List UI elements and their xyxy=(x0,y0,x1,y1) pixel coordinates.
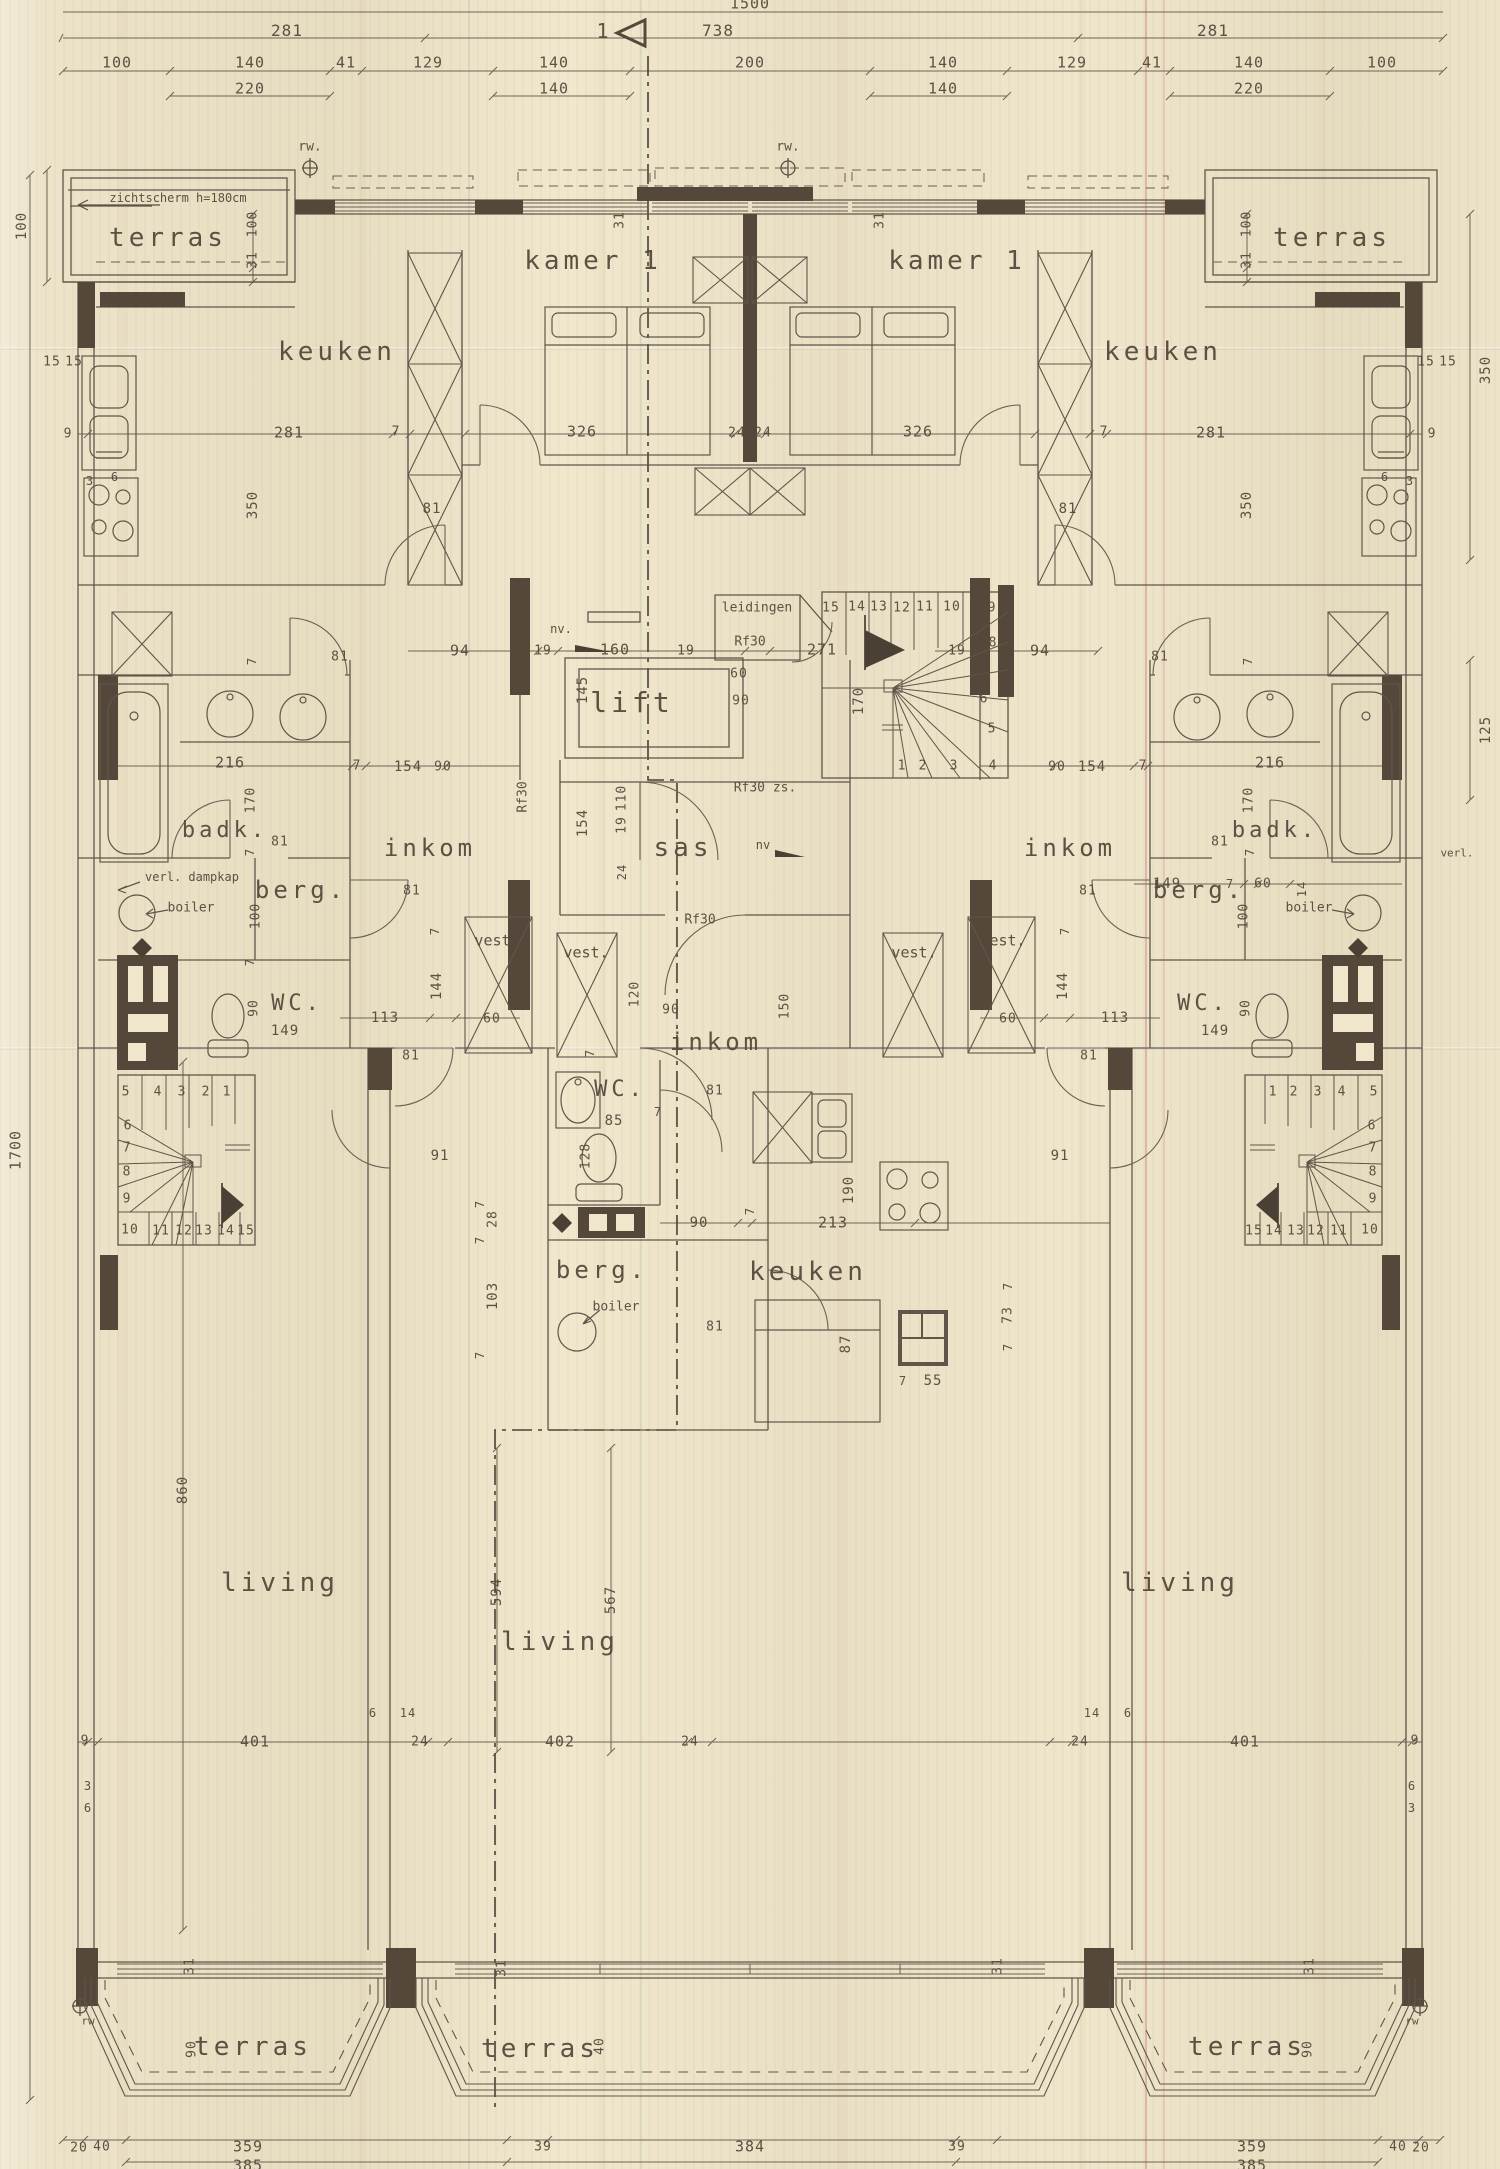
room-terras-bottom-right: terras xyxy=(1188,2034,1306,2060)
dimension-label: 87 xyxy=(839,1335,853,1354)
dimension-label: 7 xyxy=(1244,848,1256,856)
dimension-label: 154 xyxy=(1078,760,1106,774)
dimension-label: 31 xyxy=(992,1957,1005,1975)
dimension-label: 7 xyxy=(1059,927,1071,935)
dimension-label: 15 xyxy=(1439,356,1457,369)
dimension-label: 24 xyxy=(728,427,746,440)
dimension-label: 1 xyxy=(223,1086,232,1099)
dimension-label: 1 xyxy=(898,760,907,773)
dimension-label: 11 xyxy=(916,601,934,614)
dimension-label: 40 xyxy=(1389,2141,1407,2154)
dimension-label: 14 xyxy=(217,1225,235,1238)
dimension-label: 40 xyxy=(93,2141,111,2154)
dimension-label: 94 xyxy=(450,644,470,659)
note-rw-bottom-left: rw xyxy=(81,2016,94,2027)
dimension-label: 90 xyxy=(1240,999,1253,1017)
dimension-label: 24 xyxy=(616,864,628,880)
dimension-label: 149 xyxy=(1201,1024,1229,1038)
dimension-label: 31 xyxy=(184,1957,197,1975)
dimension-label: 9 xyxy=(988,602,997,615)
dimension-label: 6 xyxy=(1368,1120,1377,1133)
floor-plan-sheet: 1500281173828110014041129140200140129411… xyxy=(0,0,1500,2169)
dimension-label: 90 xyxy=(662,1004,680,1017)
dimension-label: 103 xyxy=(486,1282,500,1310)
dimension-label: 2 xyxy=(919,760,928,773)
dimension-label: 113 xyxy=(1101,1011,1129,1025)
dimension-label: 7 xyxy=(392,426,401,439)
dimension-label: 170 xyxy=(245,787,258,813)
room-berg-center: berg. xyxy=(556,1258,648,1282)
dimension-label: 20 xyxy=(70,2142,88,2155)
dimension-label: 170 xyxy=(1243,787,1256,813)
dimension-label: 24 xyxy=(1071,1736,1089,1749)
room-terras-top-left: terras xyxy=(109,225,227,251)
dimension-label: 220 xyxy=(1234,82,1264,97)
dimension-label: 10 xyxy=(943,601,961,614)
dimension-label: 3 xyxy=(178,1086,187,1099)
dimension-label: 140 xyxy=(928,82,958,97)
dimension-label: 7 xyxy=(474,1351,486,1359)
dimension-label: 738 xyxy=(702,23,734,39)
dimension-label: 90 xyxy=(434,761,452,774)
dimension-label: 81 xyxy=(706,1321,724,1334)
room-terras-bottom-center: terras xyxy=(481,2036,599,2062)
dimension-label: 7 xyxy=(584,1049,596,1057)
dimension-label: 384 xyxy=(735,2140,765,2155)
dimension-label: 144 xyxy=(430,972,444,1000)
dimension-label: 5 xyxy=(988,723,997,736)
dimension-label: 7 xyxy=(1100,426,1109,439)
dimension-label: 6 xyxy=(369,1707,377,1719)
dimension-label: 100 xyxy=(1241,211,1254,237)
dimension-label: 3 xyxy=(1406,475,1414,487)
dimension-label: 6 xyxy=(111,471,119,483)
dimension-label: 12 xyxy=(1307,1225,1325,1238)
dimension-label: 281 xyxy=(1197,23,1229,39)
dimension-label: 20 xyxy=(1412,2142,1430,2155)
dimension-label: 140 xyxy=(539,82,569,97)
dimension-label: 120 xyxy=(629,981,642,1007)
dimension-label: 14 xyxy=(848,601,866,614)
dimension-label: 60 xyxy=(1254,878,1272,891)
room-inkom-right: inkom xyxy=(1024,836,1116,860)
dimension-label: 216 xyxy=(215,756,245,771)
dimension-label: 149 xyxy=(271,1024,299,1038)
room-keuken-center: keuken xyxy=(749,1259,867,1285)
note-vest-4: vest. xyxy=(980,934,1025,949)
dimension-label: 24 xyxy=(754,427,772,440)
dimension-label: 81 xyxy=(331,651,349,664)
dimension-label: 7 xyxy=(654,1106,662,1118)
dimension-label: 6 xyxy=(84,1802,92,1814)
dimension-label: 594 xyxy=(490,1578,504,1606)
dimension-label: 15 xyxy=(237,1225,255,1238)
dimension-label: 144 xyxy=(1056,972,1070,1000)
note-vest-1: vest. xyxy=(474,934,519,949)
dimension-label: 100 xyxy=(247,211,260,237)
dimension-label: 24 xyxy=(681,1736,699,1749)
dimension-label: 7 xyxy=(1002,1282,1014,1290)
dimension-label: 31 xyxy=(247,251,260,269)
dimension-label: 140 xyxy=(539,56,569,71)
dimension-label: 31 xyxy=(614,211,627,229)
dimension-label: 7 xyxy=(1242,657,1254,665)
dimension-label: 213 xyxy=(818,1216,848,1231)
room-kamer1-right: kamer 1 xyxy=(888,248,1026,274)
label-layer: 1500281173828110014041129140200140129411… xyxy=(0,0,1500,2169)
note-vest-3: vest. xyxy=(891,946,936,961)
dimension-label: 91 xyxy=(431,1149,450,1163)
dimension-label: 271 xyxy=(807,643,837,658)
dimension-label: 6 xyxy=(980,693,989,706)
dimension-label: 41 xyxy=(1142,56,1162,71)
dimension-label: 216 xyxy=(1255,756,1285,771)
room-wc-center: WC. xyxy=(594,1079,646,1101)
dimension-label: 60 xyxy=(999,1013,1017,1026)
dimension-label: 401 xyxy=(1230,1735,1260,1750)
dimension-label: 60 xyxy=(730,668,748,681)
dimension-label: 81 xyxy=(403,885,421,898)
dimension-label: 8 xyxy=(989,637,998,650)
dimension-label: 85 xyxy=(605,1114,624,1128)
dimension-label: 12 xyxy=(893,602,911,615)
dimension-label: 24 xyxy=(411,1736,429,1749)
dimension-label: 81 xyxy=(1080,1050,1098,1063)
dimension-label: 7 xyxy=(1139,760,1148,773)
dimension-label: 6 xyxy=(1381,471,1389,483)
dimension-label: 281 xyxy=(271,23,303,39)
room-badk-right: badk. xyxy=(1232,820,1318,842)
dimension-label: 154 xyxy=(576,809,590,837)
dimension-label: 14 xyxy=(400,1707,416,1719)
dimension-label: 281 xyxy=(274,426,304,441)
dimension-label: 81 xyxy=(1151,651,1169,664)
dimension-label: 326 xyxy=(903,425,933,440)
dimension-label: 2 xyxy=(1290,1086,1299,1099)
dimension-label: 1 xyxy=(1269,1086,1278,1099)
dimension-label: 140 xyxy=(928,56,958,71)
dimension-label: 7 xyxy=(353,760,362,773)
dimension-label: 5 xyxy=(1370,1086,1379,1099)
room-living-right: living xyxy=(1121,1570,1239,1596)
note-rw-bottom-right: rw xyxy=(1405,2016,1418,2027)
room-kamer1-left: kamer 1 xyxy=(524,248,662,274)
dimension-label: 12 xyxy=(175,1225,193,1238)
dimension-label: 1700 xyxy=(9,1130,24,1170)
note-boiler-left: boiler xyxy=(168,902,215,915)
room-terras-top-right: terras xyxy=(1273,225,1391,251)
dimension-label: 4 xyxy=(989,760,998,773)
dimension-label: 15 xyxy=(822,602,840,615)
dimension-label: 100 xyxy=(1367,56,1397,71)
dimension-label: 90 xyxy=(248,999,261,1017)
dimension-label: 7 xyxy=(474,1236,486,1244)
dimension-label: 7 xyxy=(244,848,256,856)
dimension-label: 39 xyxy=(534,2141,552,2154)
dimension-label: 7 xyxy=(899,1375,907,1387)
dimension-label: 94 xyxy=(1030,644,1050,659)
dimension-label: 150 xyxy=(779,993,792,1019)
dimension-label: 11 xyxy=(152,1225,170,1238)
dimension-label: 6 xyxy=(1124,1707,1132,1719)
dimension-label: 81 xyxy=(706,1085,724,1098)
dimension-label: 125 xyxy=(1479,716,1493,744)
dimension-label: 91 xyxy=(1051,1149,1070,1163)
note-boiler-center: boiler xyxy=(593,1301,640,1314)
dimension-label: 140 xyxy=(235,56,265,71)
dimension-label: 281 xyxy=(1196,426,1226,441)
room-keuken-right: keuken xyxy=(1104,339,1222,365)
dimension-label: 6 xyxy=(124,1120,133,1133)
dimension-label: 220 xyxy=(235,82,265,97)
dimension-label: 3 xyxy=(1314,1086,1323,1099)
dimension-label: 19 xyxy=(677,645,695,658)
dimension-label: 7 xyxy=(246,657,258,665)
dimension-label: 200 xyxy=(735,56,765,71)
dimension-label: 359 xyxy=(1237,2140,1267,2155)
dimension-label: 100 xyxy=(15,212,29,240)
dimension-label: 15 xyxy=(65,356,83,369)
dimension-label: 14 xyxy=(1265,1225,1283,1238)
dimension-label: 73 xyxy=(1002,1306,1015,1324)
dimension-label: 4 xyxy=(154,1086,163,1099)
dimension-label: 129 xyxy=(413,56,443,71)
room-badk-left: badk. xyxy=(182,820,268,842)
room-wc-right: WC. xyxy=(1177,993,1229,1015)
note-label: nv xyxy=(975,668,988,679)
note-label: Rf30 xyxy=(517,781,530,812)
dimension-label: 140 xyxy=(1234,56,1264,71)
dimension-label: 402 xyxy=(545,1735,575,1750)
dimension-label: 31 xyxy=(1241,251,1254,269)
dimension-label: 9 xyxy=(123,1193,132,1206)
dimension-label: 7 xyxy=(474,1200,486,1208)
dimension-label: 55 xyxy=(924,1374,943,1388)
dimension-label: 113 xyxy=(371,1011,399,1025)
note-verl-right: verl. xyxy=(1440,848,1473,859)
dimension-label: 100 xyxy=(102,56,132,71)
room-sas: sas xyxy=(654,835,713,861)
room-berg-right: berg. xyxy=(1153,878,1245,902)
dimension-label: 81 xyxy=(1211,836,1229,849)
dimension-label: 5 xyxy=(122,1086,131,1099)
dimension-label: 81 xyxy=(423,502,442,516)
dimension-label: 11 xyxy=(1330,1225,1348,1238)
note-zichtscherm: zichtscherm h=180cm xyxy=(109,192,246,204)
room-keuken-left: keuken xyxy=(278,339,396,365)
dimension-label: 100 xyxy=(250,903,263,929)
dimension-label: 128 xyxy=(580,1143,593,1169)
note-verl-dampkap: verl. dampkap xyxy=(145,871,239,883)
dimension-label: 385 xyxy=(1237,2159,1267,2169)
note-rw-top-left: rw. xyxy=(298,141,321,154)
dimension-label: 19 xyxy=(616,816,629,834)
dimension-label: 14 xyxy=(1084,1707,1100,1719)
room-living-left: living xyxy=(221,1570,339,1596)
dimension-label: 359 xyxy=(233,2140,263,2155)
note-nv-sas: nv xyxy=(756,839,770,851)
dimension-label: 90 xyxy=(690,1216,709,1230)
note-label: Rf30 xyxy=(684,914,715,927)
dimension-label: 7 xyxy=(123,1142,132,1155)
dimension-label: 28 xyxy=(487,1210,500,1228)
dimension-label: 7 xyxy=(1002,1343,1014,1351)
dimension-label: 7 xyxy=(1369,1142,1378,1155)
dimension-label: 145 xyxy=(576,676,590,704)
dimension-label: 13 xyxy=(1287,1225,1305,1238)
dimension-label: 15 xyxy=(1245,1225,1263,1238)
dimension-label: 160 xyxy=(600,643,630,658)
dimension-label: 6 xyxy=(1408,1780,1416,1792)
dimension-label: 81 xyxy=(271,836,289,849)
room-terras-bottom-left: terras xyxy=(194,2034,312,2060)
dimension-label: 19 xyxy=(534,645,552,658)
dimension-label: 31 xyxy=(496,1959,509,1977)
dimension-label: 7 xyxy=(744,1207,756,1215)
dimension-label: 19 xyxy=(948,645,966,658)
dimension-label: 10 xyxy=(1361,1224,1379,1237)
dimension-label: 170 xyxy=(852,687,866,715)
note-label: Rf30 zs. xyxy=(734,782,797,795)
dimension-label: 31 xyxy=(874,211,887,229)
dimension-label: 100 xyxy=(1238,903,1251,929)
room-inkom-left: inkom xyxy=(384,836,476,860)
dimension-label: 401 xyxy=(240,1735,270,1750)
dimension-label: 190 xyxy=(842,1176,856,1204)
note-boiler-right: boiler xyxy=(1286,902,1333,915)
dimension-label: 3 xyxy=(84,1780,92,1792)
dimension-label: 3 xyxy=(1408,1802,1416,1814)
dimension-label: 567 xyxy=(604,1586,618,1614)
dimension-label: 350 xyxy=(1479,356,1493,384)
dimension-label: 14 xyxy=(1296,881,1308,897)
dimension-label: 31 xyxy=(1304,1957,1317,1975)
dimension-label: 110 xyxy=(616,785,629,811)
dimension-label: 350 xyxy=(246,491,260,519)
dimension-label: 15 xyxy=(43,356,61,369)
note-label: Rf30 xyxy=(734,636,765,649)
dimension-label: 90 xyxy=(732,695,750,708)
room-inkom-center: inkom xyxy=(670,1030,762,1054)
room-leidingen: leidingen xyxy=(722,602,792,615)
room-berg-left: berg. xyxy=(255,878,347,902)
dimension-label: 9 xyxy=(64,428,73,441)
dimension-label: 9 xyxy=(1369,1193,1378,1206)
dimension-label: 129 xyxy=(1057,56,1087,71)
note-nv-hall: nv. xyxy=(550,623,572,635)
dimension-label: 90 xyxy=(1048,761,1066,774)
dimension-label: 60 xyxy=(483,1013,501,1026)
dimension-label: 81 xyxy=(402,1050,420,1063)
dimension-label: 13 xyxy=(195,1225,213,1238)
dimension-label: 326 xyxy=(567,425,597,440)
dimension-label: 9 xyxy=(81,1735,90,1748)
dimension-label: 7 xyxy=(244,958,256,966)
dimension-label: 350 xyxy=(1240,491,1254,519)
dimension-label: 39 xyxy=(948,2141,966,2154)
dimension-label: 81 xyxy=(1079,885,1097,898)
room-wc-left: WC. xyxy=(271,993,323,1015)
dimension-label: 860 xyxy=(176,1476,190,1504)
dimension-label: 81 xyxy=(1059,502,1078,516)
dimension-label: 7 xyxy=(429,927,441,935)
room-living-center: living xyxy=(501,1629,619,1655)
dimension-label: 8 xyxy=(1369,1166,1378,1179)
dimension-label: 10 xyxy=(121,1224,139,1237)
dimension-label: 154 xyxy=(394,760,422,774)
dimension-label: 4 xyxy=(1338,1086,1347,1099)
dimension-label: 8 xyxy=(123,1166,132,1179)
room-lift: lift xyxy=(590,689,673,717)
dimension-label: 13 xyxy=(870,601,888,614)
note-vest-2: vest. xyxy=(563,946,608,961)
dimension-label: 15 xyxy=(1417,356,1435,369)
dimension-label: 41 xyxy=(336,56,356,71)
dimension-label: 3 xyxy=(950,760,959,773)
section-marker-1: 1 xyxy=(596,21,609,41)
note-rw-top-right: rw. xyxy=(776,141,799,154)
dimension-label: 385 xyxy=(233,2159,263,2169)
dimension-label: 3 xyxy=(86,475,94,487)
dimension-label: 1500 xyxy=(730,0,770,12)
dimension-label: 9 xyxy=(1428,428,1437,441)
dimension-label: 9 xyxy=(1411,1735,1420,1748)
dimension-label: 2 xyxy=(202,1086,211,1099)
